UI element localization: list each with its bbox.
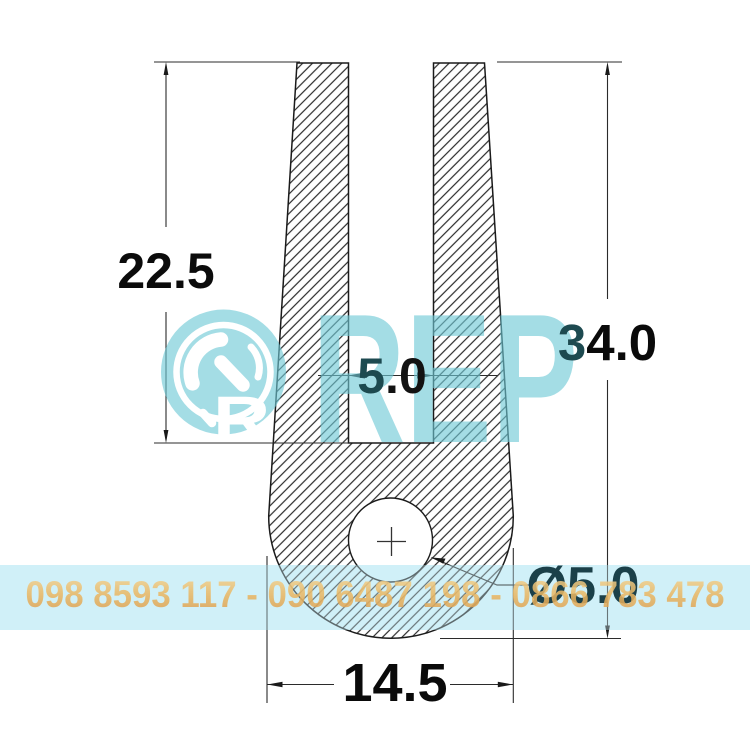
svg-text:34.0: 34.0 <box>558 314 657 371</box>
svg-text:098 8593 117 - 090 6487 198 -: 098 8593 117 - 090 6487 198 - 0866 783 4… <box>26 574 725 615</box>
svg-text:22.5: 22.5 <box>117 243 214 299</box>
svg-text:14.5: 14.5 <box>342 653 447 713</box>
svg-text:5.0: 5.0 <box>357 348 427 404</box>
svg-text:REP: REP <box>312 275 578 481</box>
svg-text:R: R <box>213 383 270 456</box>
